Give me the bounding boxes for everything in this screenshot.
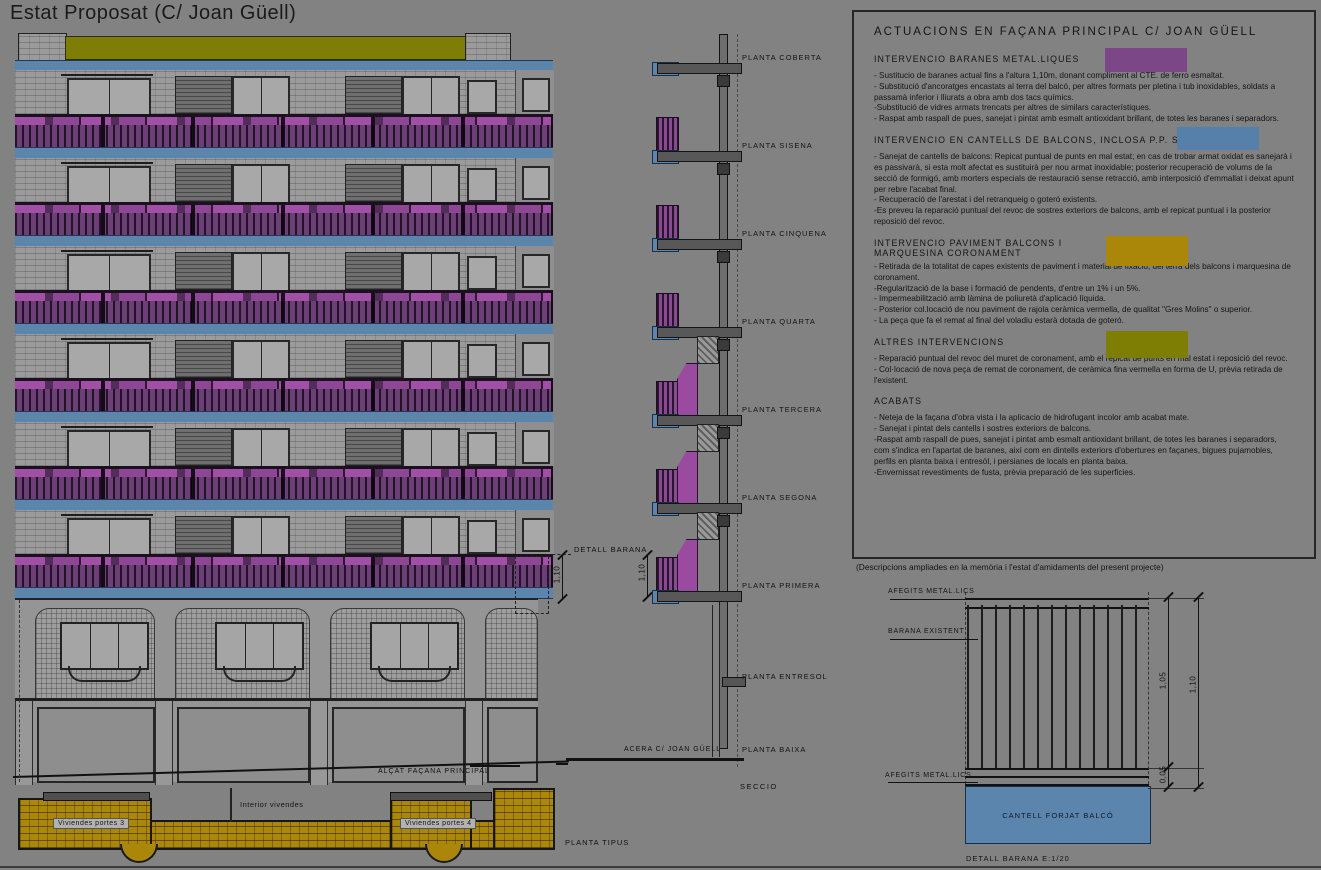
sidewalk-step <box>556 763 568 765</box>
balcony-railing <box>15 202 553 239</box>
dim-line-105 <box>1168 598 1169 788</box>
section-blind-box <box>697 424 719 452</box>
plan-balcony-paving <box>493 788 555 850</box>
purple-swatch <box>1105 48 1187 72</box>
floor-label: PLANTA CINQUENA <box>742 229 827 238</box>
window <box>402 76 460 116</box>
legend-section: INTERVENCIO BARANES METAL.LIQUES- Sustit… <box>874 54 1294 125</box>
section-slab <box>657 239 742 250</box>
coping-olive-band <box>65 36 467 60</box>
balcony-railing <box>15 114 553 151</box>
facade-recess-wall <box>515 70 554 114</box>
section-railing <box>656 205 679 241</box>
legend-section-heading: ALTRES INTERVENCIONS <box>874 337 1294 347</box>
coping-brick-right <box>465 33 511 62</box>
facade-caption: ALÇAT FAÇANA PRINCIPAL <box>378 768 490 775</box>
entresol-awning <box>223 666 296 682</box>
plan-wall <box>43 792 150 801</box>
lattice-panel <box>485 608 538 699</box>
section-joint-detail <box>717 515 730 527</box>
window-lintel <box>61 250 153 252</box>
barana-detail-drawing: CANTELL FORJAT BALCÓ AFEGITS METAL.LICS … <box>860 580 1320 870</box>
facade-recess-wall <box>515 510 554 554</box>
shop-opening <box>487 707 538 783</box>
section-railing <box>656 117 679 153</box>
window-lintel <box>61 338 153 340</box>
section-joint-detail <box>717 339 730 351</box>
facade-elevation-drawing <box>15 30 555 782</box>
leader-line <box>890 599 978 600</box>
section-awning <box>677 539 698 593</box>
dim-text-110: 1,10 <box>1188 676 1197 694</box>
window <box>67 78 151 116</box>
facade-recess-wall <box>515 422 554 466</box>
legend-section-heading-row: ACABATS <box>874 396 1294 409</box>
section-parapet <box>719 34 728 65</box>
facade-dim-text: 1,10 <box>552 566 561 584</box>
leader-line <box>888 782 978 783</box>
street-label: ACERA C/ JOAN GÜELL <box>624 746 721 753</box>
page-title: Estat Proposat (C/ Joan Güell) <box>10 2 296 25</box>
window <box>67 254 151 292</box>
extension-line <box>1148 768 1204 769</box>
dim-text-105: 1,05 <box>1158 672 1167 690</box>
detail-label-barana: BARANA EXISTENT <box>888 628 965 635</box>
dim-line-110 <box>1198 598 1199 788</box>
section-railing <box>656 381 679 417</box>
window <box>522 166 550 200</box>
legend-panel: ACTUACIONS EN FAÇANA PRINCIPAL C/ JOAN G… <box>852 10 1316 559</box>
floor-label: PLANTA BAIXA <box>742 745 806 754</box>
facade-floor <box>15 70 553 158</box>
legend-section-heading: INTERVENCIO PAVIMENT BALCONS I MARQUESIN… <box>874 238 1294 258</box>
window <box>467 520 497 554</box>
persiana-shutter <box>345 428 402 466</box>
facade-wall <box>15 246 515 290</box>
olive-swatch <box>1106 331 1188 358</box>
persiana-shutter <box>345 76 402 114</box>
section-awning <box>677 451 698 505</box>
facade-floor <box>15 158 553 246</box>
legend-section-heading-row: ALTRES INTERVENCIONS <box>874 337 1294 350</box>
window <box>522 254 550 288</box>
section-drawing: PLANTA COBERTAPLANTA SISENAPLANTA CINQUE… <box>648 28 826 808</box>
balcony-railing <box>15 378 553 415</box>
legend-section: INTERVENCIO EN CANTELLS DE BALCONS, INCL… <box>874 135 1294 228</box>
entresol-window <box>60 622 149 670</box>
window <box>467 432 497 466</box>
section-dashed-axis <box>737 34 738 767</box>
window <box>402 164 460 204</box>
floor-label: PLANTA ENTRESOL <box>742 672 828 681</box>
window <box>67 166 151 204</box>
window <box>522 78 550 112</box>
balcony-railing <box>15 554 553 591</box>
section-caption: SECCIO <box>740 782 778 791</box>
pier <box>310 701 328 785</box>
window <box>232 428 290 468</box>
facade-wall <box>15 510 515 554</box>
property-dashed-line <box>19 600 20 782</box>
legend-section-body: - Retirada de la totalitat de capes exis… <box>874 262 1294 327</box>
window <box>67 518 151 556</box>
detail-callout-leader <box>547 554 571 555</box>
plan-right-label: Viviendes portes 4 <box>400 818 476 829</box>
window-lintel <box>61 162 153 164</box>
detail-callout-label: DETALL BARANA <box>574 545 647 554</box>
facade-wall <box>15 70 515 114</box>
facade-recess-wall <box>515 246 554 290</box>
window <box>467 168 497 202</box>
detail-bottom-rail <box>965 776 1149 786</box>
legend-section-heading-row: INTERVENCIO PAVIMENT BALCONS I MARQUESIN… <box>874 238 1294 258</box>
floor-label: PLANTA TERCERA <box>742 405 822 414</box>
section-joint-detail <box>717 75 730 87</box>
blue-swatch <box>1177 127 1259 150</box>
section-slab <box>657 151 742 162</box>
coping-brick-left <box>18 33 67 62</box>
window <box>232 164 290 204</box>
facade-dim-line <box>562 556 563 600</box>
legend-section: ACABATS- Neteja de la façana d'obra vist… <box>874 396 1294 478</box>
balcony-bump <box>120 844 158 863</box>
legend-section-body: - Reparació puntual del revoc del muret … <box>874 354 1294 386</box>
legend-section-body: - Neteja de la façana d'obra vista i la … <box>874 413 1294 478</box>
legend-section: INTERVENCIO PAVIMENT BALCONS I MARQUESIN… <box>874 238 1294 327</box>
facade-floor <box>15 334 553 422</box>
persiana-shutter <box>175 164 232 202</box>
legend-title: ACTUACIONS EN FAÇANA PRINCIPAL C/ JOAN G… <box>874 26 1294 38</box>
window <box>232 252 290 292</box>
balcony-railing <box>15 290 553 327</box>
window <box>402 428 460 468</box>
window <box>232 76 290 116</box>
section-railing <box>656 557 679 593</box>
plan-divider-wall <box>230 788 232 822</box>
window <box>522 518 550 552</box>
persiana-shutter <box>345 340 402 378</box>
legend-section-heading-row: INTERVENCIO BARANES METAL.LIQUES <box>874 54 1294 67</box>
window <box>67 342 151 380</box>
plan-drawing: Viviendes portes 3 Viviendes portes 4 In… <box>15 786 555 870</box>
entresol-window <box>370 622 459 670</box>
facade-wall <box>15 422 515 466</box>
window-lintel <box>61 74 153 76</box>
persiana-shutter <box>345 516 402 554</box>
legend-section-body: - Sanejat de cantells de balcons: Repica… <box>874 152 1294 228</box>
section-railing <box>656 293 679 329</box>
facade-floor <box>15 246 553 334</box>
facade-recess-wall <box>515 334 554 378</box>
section-railing <box>656 469 679 505</box>
window <box>522 342 550 376</box>
legend-section-heading: INTERVENCIO BARANES METAL.LIQUES <box>874 54 1294 64</box>
window <box>232 340 290 380</box>
plan-caption: PLANTA TIPUS <box>565 838 629 847</box>
persiana-shutter <box>345 252 402 290</box>
legend-sections: INTERVENCIO BARANES METAL.LIQUES- Sustit… <box>874 54 1294 478</box>
floor-label: PLANTA PRIMERA <box>742 581 820 590</box>
balcony-bump <box>425 844 463 863</box>
dim-text-005: 0,05 <box>1158 766 1167 784</box>
floor-label: PLANTA QUARTA <box>742 317 816 326</box>
facade-wall <box>15 158 515 202</box>
window-lintel <box>61 426 153 428</box>
facade-floor <box>15 510 553 598</box>
persiana-shutter <box>175 76 232 114</box>
legend-section: ALTRES INTERVENCIONS- Reparació puntual … <box>874 337 1294 386</box>
facade-floor <box>15 422 553 510</box>
legend-section-heading-row: INTERVENCIO EN CANTELLS DE BALCONS, INCL… <box>874 135 1294 148</box>
persiana-shutter <box>175 516 232 554</box>
legend-footnote: (Descripcions ampliades en la memòria i … <box>856 562 1318 572</box>
plan-wall <box>390 792 492 801</box>
legend-section-body: - Sustitucio de baranes actual fins a l'… <box>874 71 1294 125</box>
detail-label-afegits-top: AFEGITS METAL.LICS <box>888 588 975 595</box>
sheet-edge-line <box>0 866 1321 868</box>
persiana-shutter <box>345 164 402 202</box>
leader-line <box>890 639 978 640</box>
entresol-awning <box>68 666 141 682</box>
section-joint-detail <box>717 251 730 263</box>
plan-left-label: Viviendes portes 3 <box>53 818 129 829</box>
section-ground-line <box>566 758 744 761</box>
plan-interior-label: Interior vivendes <box>240 800 304 809</box>
section-joint-detail <box>717 163 730 175</box>
sidewalk-step <box>470 765 520 767</box>
detail-caption: DETALL BARANA E:1/20 <box>966 854 1070 863</box>
persiana-shutter <box>175 252 232 290</box>
window <box>402 516 460 556</box>
window-lintel <box>61 514 153 516</box>
section-awning <box>677 363 698 417</box>
window <box>402 340 460 380</box>
window <box>467 256 497 290</box>
facade-wall <box>15 334 515 378</box>
facade-recess-wall <box>515 158 554 202</box>
window <box>67 430 151 468</box>
balcony-railing <box>15 466 553 503</box>
facade-ground-floor <box>15 598 538 782</box>
floor-label: PLANTA SEGONA <box>742 493 817 502</box>
floor-label: PLANTA COBERTA <box>742 53 822 62</box>
drawing-sheet: Estat Proposat (C/ Joan Güell) <box>0 0 1321 870</box>
window <box>402 252 460 292</box>
window <box>232 516 290 556</box>
floor-label: PLANTA SISENA <box>742 141 813 150</box>
detail-callout-box <box>515 556 549 614</box>
persiana-shutter <box>175 340 232 378</box>
section-joint-detail <box>717 427 730 439</box>
detail-slab-edge: CANTELL FORJAT BALCÓ <box>965 786 1151 844</box>
section-blind-box <box>697 512 719 540</box>
section-slab <box>657 63 742 74</box>
mustard-swatch <box>1106 236 1188 266</box>
section-dim-text: 1,10 <box>637 564 646 582</box>
legend-section-heading: ACABATS <box>874 396 1294 406</box>
persiana-shutter <box>175 428 232 466</box>
pier <box>15 701 33 785</box>
section-blind-box <box>697 336 719 364</box>
entresol-window <box>215 622 304 670</box>
entresol-awning <box>378 666 451 682</box>
section-slab <box>657 591 742 602</box>
detail-label-afegits-bottom: AFEGITS METAL.LICS <box>885 772 972 779</box>
window <box>522 430 550 464</box>
window <box>467 80 497 114</box>
window <box>467 344 497 378</box>
section-shopfront <box>712 605 720 757</box>
detail-balusters <box>967 605 1149 768</box>
